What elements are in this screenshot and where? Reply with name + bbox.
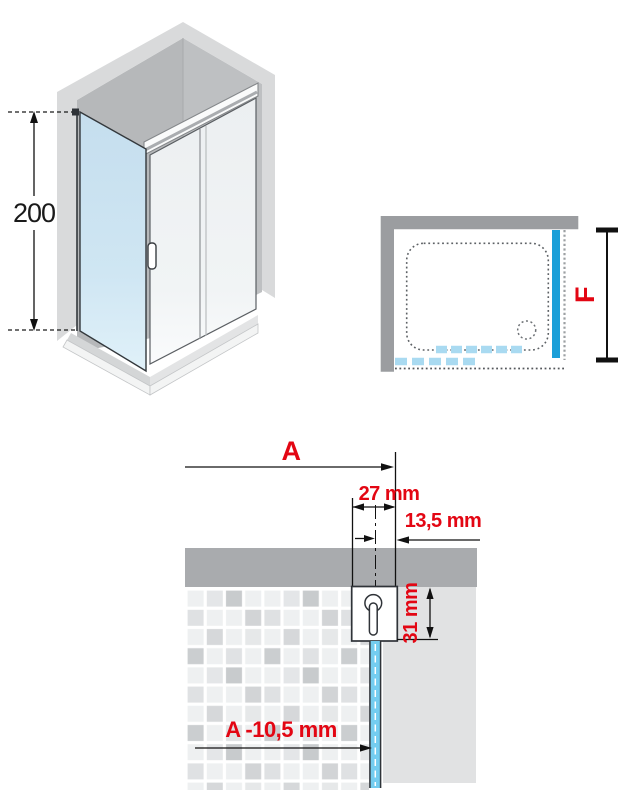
center-marker-arrow xyxy=(364,535,375,542)
plan-tray-outline xyxy=(407,243,549,350)
depth-dim-label: F xyxy=(570,287,600,303)
profile-width-dim-label: 27 mm xyxy=(359,483,420,505)
keyhole-slot xyxy=(369,603,377,635)
depth-dim-cap-bottom xyxy=(596,358,618,363)
width-dim-arrow xyxy=(381,463,394,471)
glass-width-dim-label: A -10,5 mm xyxy=(225,717,337,742)
offset-dim-label: 13,5 mm xyxy=(405,510,482,532)
plan-view: F xyxy=(370,205,632,380)
height-dim-arrow-bottom xyxy=(30,319,38,331)
height-dim-label: 200 xyxy=(13,198,55,228)
height-dim-arrow-top xyxy=(30,111,38,123)
profile-depth-dim-label: 31 mm xyxy=(400,583,422,644)
plan-wall xyxy=(381,216,579,372)
glass-top-corner-marker xyxy=(72,109,79,116)
technical-diagram-page: 200 F xyxy=(0,0,638,796)
detail-wall-section xyxy=(185,548,477,587)
depth-dim-cap-top xyxy=(596,228,618,233)
plan-fixed-glass-panel xyxy=(552,230,560,358)
detail-tiled-wall xyxy=(186,589,369,790)
door-handle xyxy=(148,243,156,269)
width-dim-label: A xyxy=(282,436,301,466)
isometric-view: 200 xyxy=(0,0,345,410)
side-glass-panel xyxy=(80,112,146,371)
offset-dim-arrow xyxy=(397,536,410,543)
plan-drain xyxy=(518,321,536,339)
detail-view: A 27 mm 13,5 mm 31 mm A -10 xyxy=(180,430,638,796)
